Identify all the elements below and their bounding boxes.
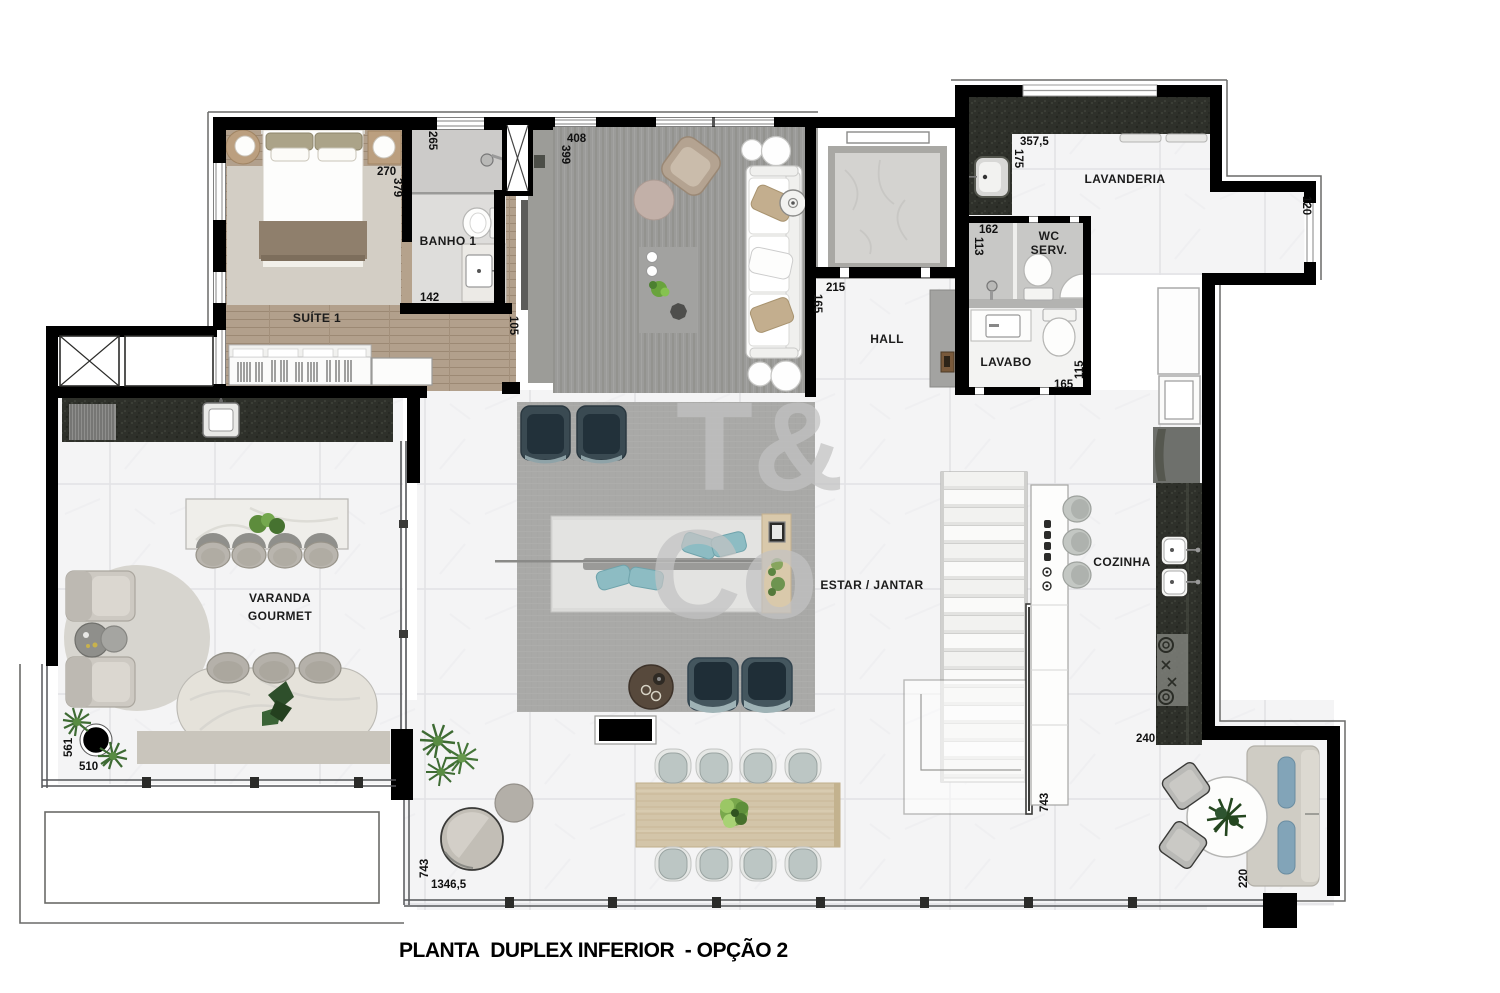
svg-text:COZINHA: COZINHA — [1093, 555, 1150, 569]
svg-text:WC: WC — [1039, 229, 1060, 243]
svg-text:PLANTA DUPLEX INFERIOR - OPÇ: PLANTA DUPLEX INFERIOR - OPÇÃO 2 — [399, 939, 788, 962]
svg-text:215: 215 — [826, 282, 846, 294]
svg-text:ESTAR / JANTAR: ESTAR / JANTAR — [820, 578, 923, 592]
svg-text:357,5: 357,5 — [1020, 136, 1049, 148]
svg-text:LAVANDERIA: LAVANDERIA — [1085, 172, 1166, 186]
svg-text:LAVABO: LAVABO — [980, 355, 1031, 369]
svg-text:379: 379 — [391, 178, 403, 197]
svg-text:240: 240 — [1136, 733, 1155, 745]
svg-text:HALL: HALL — [870, 332, 904, 346]
svg-text:165: 165 — [811, 294, 823, 314]
svg-text:113: 113 — [972, 237, 984, 256]
svg-text:743: 743 — [419, 859, 431, 878]
svg-text:408: 408 — [567, 133, 587, 145]
svg-text:165: 165 — [1054, 379, 1074, 391]
svg-text:220: 220 — [1238, 869, 1250, 888]
svg-text:162: 162 — [979, 224, 998, 236]
svg-text:1346,5: 1346,5 — [431, 879, 467, 891]
svg-text:399: 399 — [559, 145, 571, 164]
svg-text:743: 743 — [1039, 793, 1051, 812]
svg-text:SERV.: SERV. — [1031, 243, 1068, 257]
svg-text:510: 510 — [79, 761, 98, 773]
svg-text:270: 270 — [377, 166, 396, 178]
svg-text:T&: T& — [676, 376, 844, 517]
svg-text:142: 142 — [420, 292, 439, 304]
svg-text:265: 265 — [426, 131, 438, 151]
svg-text:GOURMET: GOURMET — [248, 609, 312, 623]
svg-text:105: 105 — [507, 316, 519, 336]
svg-text:115: 115 — [1074, 360, 1086, 379]
svg-text:VARANDA: VARANDA — [249, 591, 311, 605]
svg-text:SUÍTE 1: SUÍTE 1 — [293, 310, 341, 325]
svg-text:561: 561 — [63, 737, 75, 757]
svg-text:120: 120 — [1300, 196, 1312, 215]
svg-text:BANHO 1: BANHO 1 — [420, 234, 477, 248]
svg-text:175: 175 — [1012, 149, 1024, 169]
svg-text:Co: Co — [650, 504, 818, 645]
